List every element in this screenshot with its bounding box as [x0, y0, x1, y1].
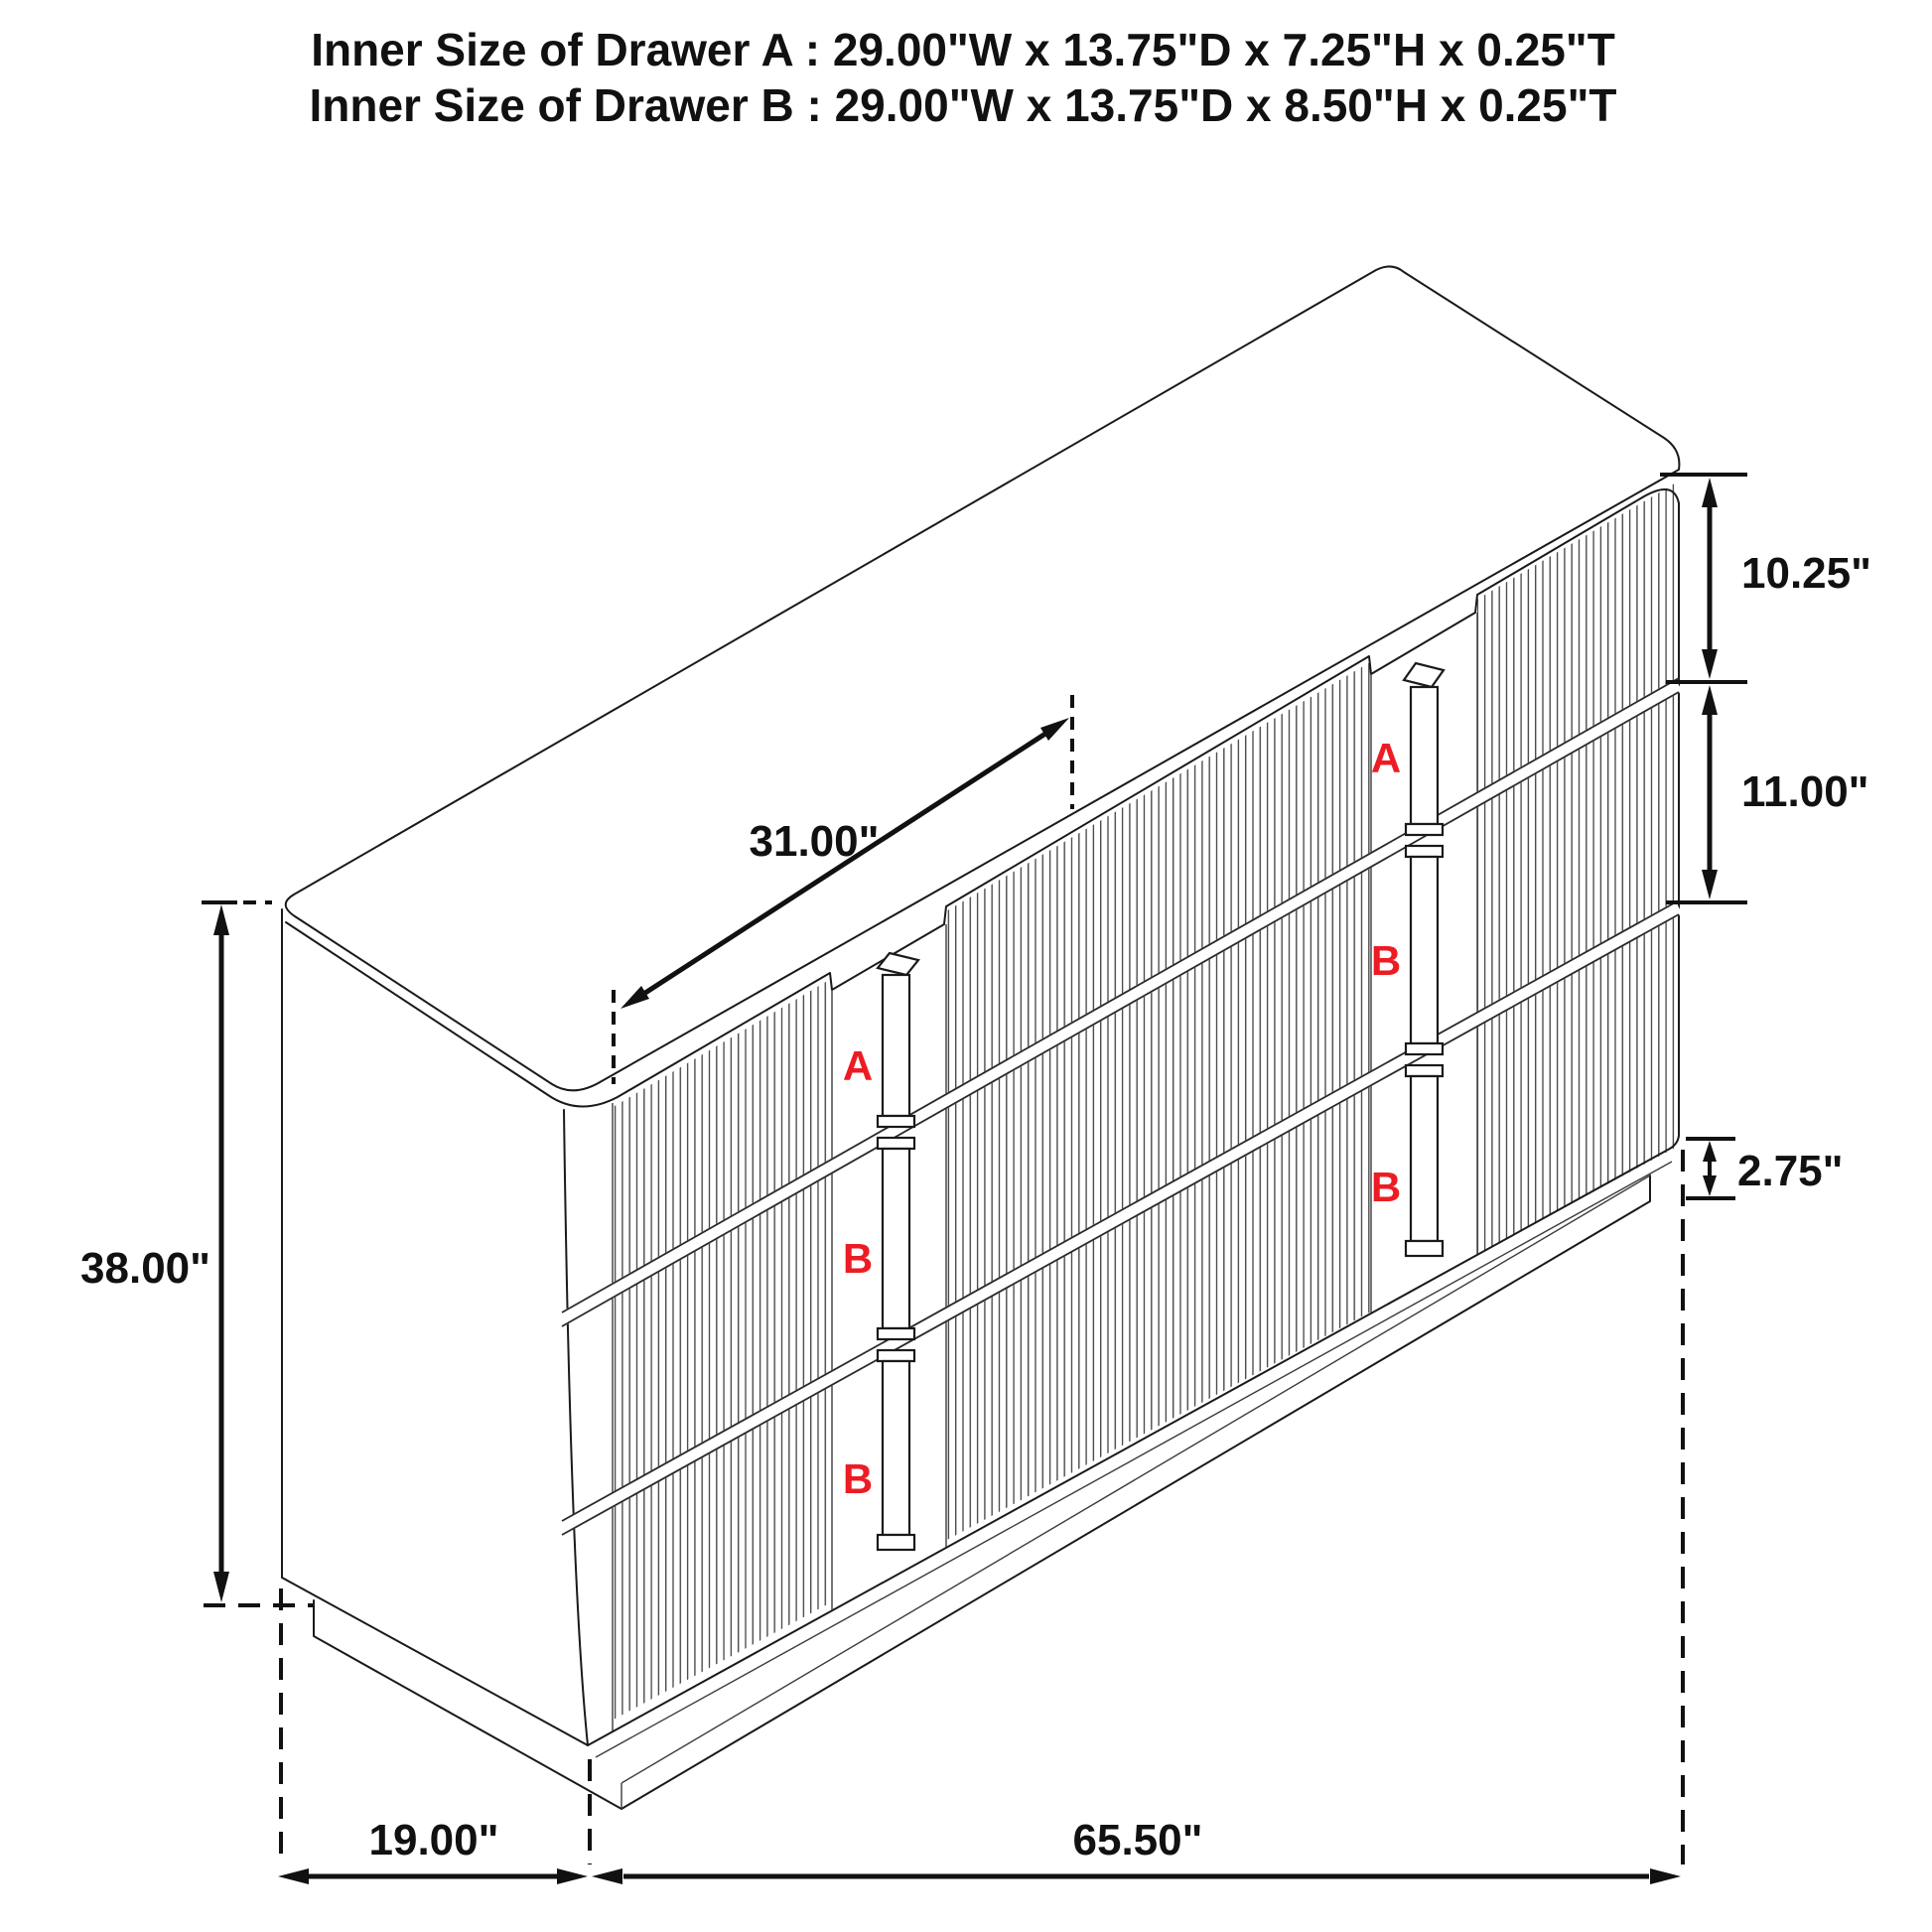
dim-drawer-a-height-label: 10.25"	[1741, 549, 1871, 598]
drawer-label-right-a: A	[1371, 735, 1401, 781]
dim-base-height-label: 2.75"	[1737, 1147, 1844, 1195]
drawer-label-right-b2: B	[1371, 1164, 1401, 1210]
dim-overall-width: 65.50"	[592, 1816, 1681, 1884]
drawer-label-left-b2: B	[843, 1455, 873, 1502]
dim-drawer-b-height-label: 11.00"	[1741, 767, 1869, 816]
dim-drawer-b-height: 11.00"	[1702, 685, 1869, 899]
dresser-drawing: A B B A B B	[282, 266, 1716, 1809]
center-panel-flutes	[946, 661, 1371, 1605]
dim-base-height: 2.75"	[1703, 1141, 1844, 1196]
right-drawer-handle	[1404, 663, 1444, 1256]
drawer-label-left-b1: B	[843, 1235, 873, 1282]
diagram-canvas: Inner Size of Drawer A : 29.00"W x 13.75…	[0, 0, 1932, 1932]
drawer-label-right-b1: B	[1371, 937, 1401, 984]
dim-overall-height: 38.00"	[80, 904, 229, 1602]
dim-drawer-a-height: 10.25"	[1702, 478, 1871, 679]
side-panel	[282, 909, 588, 1745]
flute-texture	[613, 460, 1716, 1803]
dim-overall-width-label: 65.50"	[1073, 1816, 1203, 1864]
dim-overall-depth-label: 19.00"	[369, 1816, 499, 1864]
drawer-label-left-a: A	[843, 1042, 873, 1089]
title-line-1: Inner Size of Drawer A : 29.00"W x 13.75…	[311, 24, 1615, 75]
dim-overall-depth: 19.00"	[278, 1816, 588, 1884]
title-line-2: Inner Size of Drawer B : 29.00"W x 13.75…	[309, 79, 1616, 131]
dresser-dimension-diagram: Inner Size of Drawer A : 29.00"W x 13.75…	[0, 0, 1932, 1932]
dim-overall-height-label: 38.00"	[80, 1244, 210, 1293]
dim-top-clearance-label: 31.00"	[750, 817, 880, 866]
